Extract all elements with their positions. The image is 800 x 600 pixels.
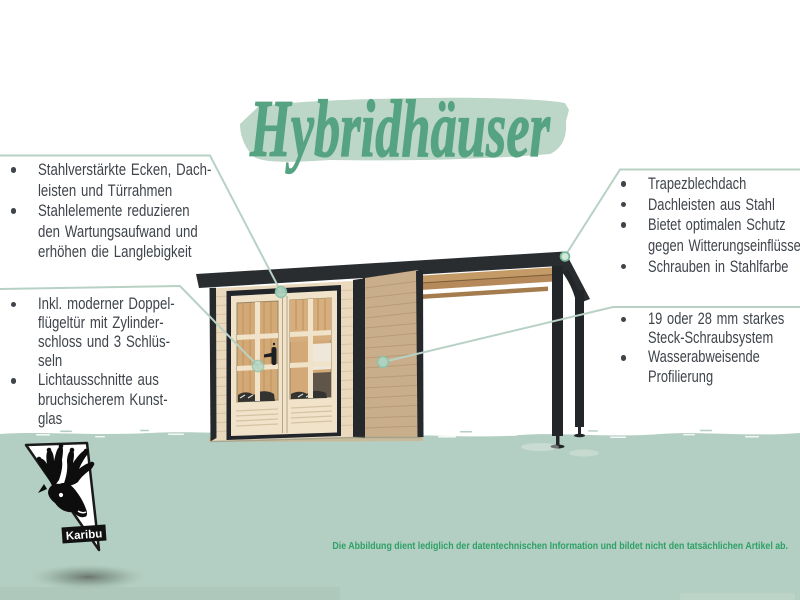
svg-text:Karibu: Karibu <box>66 528 103 543</box>
svg-text:Hybridhäuser: Hybridhäuser <box>249 83 550 174</box>
